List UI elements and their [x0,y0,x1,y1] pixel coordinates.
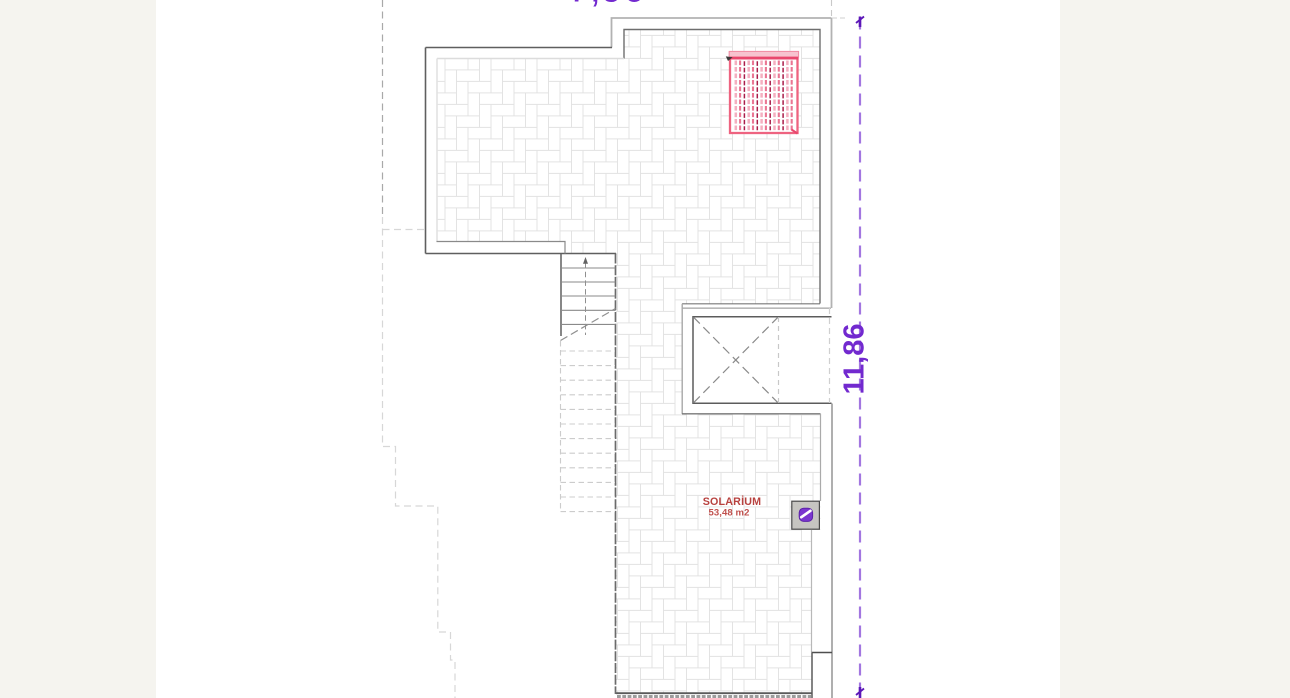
svg-text:7,90: 7,90 [568,0,646,11]
svg-text:SOLARİUM: SOLARİUM [703,495,762,508]
svg-text:53,48 m2: 53,48 m2 [709,508,750,519]
svg-text:11,86: 11,86 [839,324,871,395]
